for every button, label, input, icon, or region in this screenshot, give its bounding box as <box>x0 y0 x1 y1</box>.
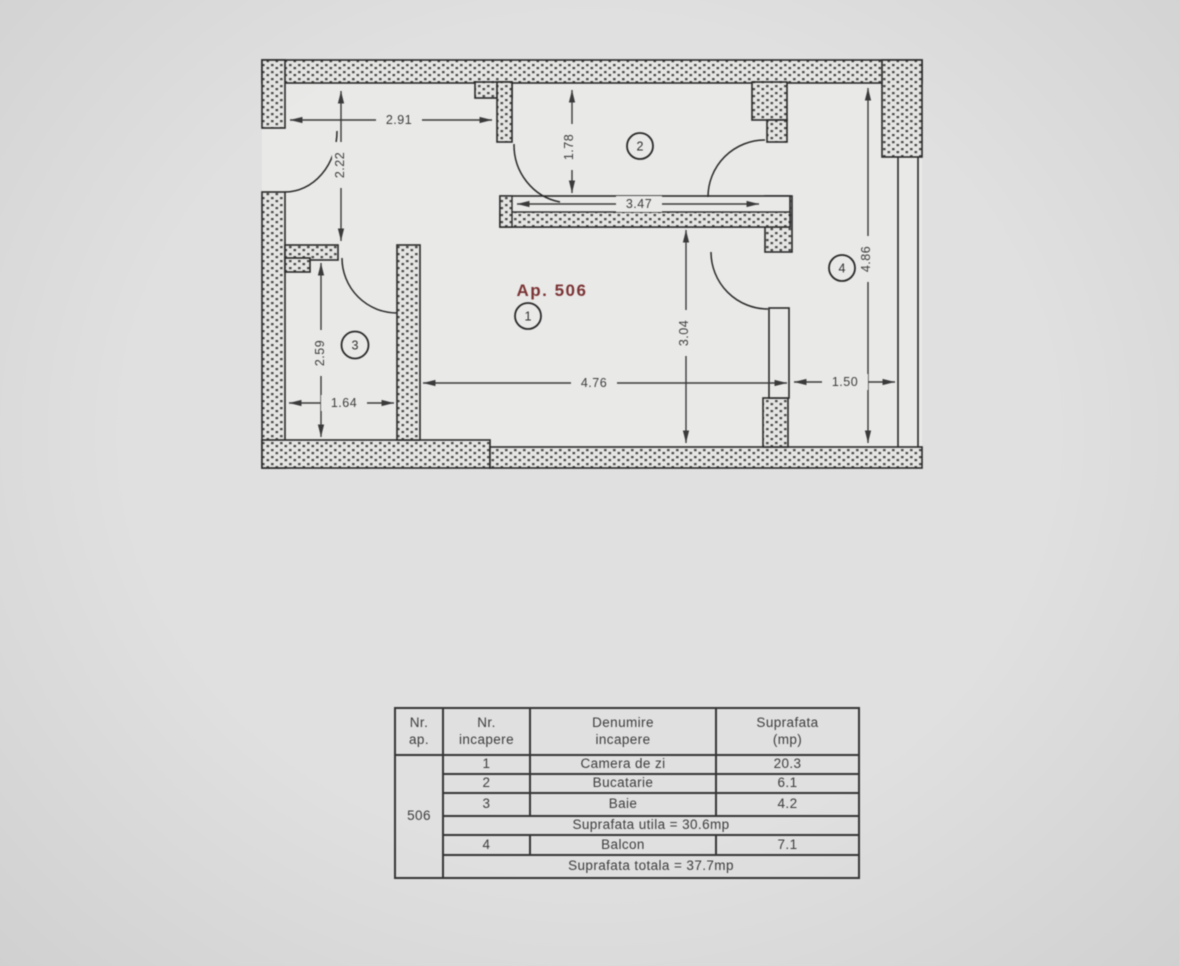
header-nr-incapere: Nr. incapere <box>443 708 530 755</box>
subtotal-row: Suprafata utila = 30.6mp <box>395 816 859 835</box>
header-line: incapere <box>531 732 715 748</box>
dimension-label: 2.91 <box>386 113 412 127</box>
header-suprafata: Suprafata (mp) <box>716 708 859 755</box>
header-denumire: Denumire incapere <box>530 708 716 755</box>
scan-content: 2.91 3.47 4.76 1.50 1.64 2.22 1.78 3.04 … <box>0 0 1179 966</box>
room-nr-cell: 2 <box>443 774 530 793</box>
room-name-cell: Balcon <box>530 835 716 855</box>
header-line: ap. <box>396 732 442 748</box>
floor-plan: 2.91 3.47 4.76 1.50 1.64 2.22 1.78 3.04 … <box>0 0 1179 560</box>
header-nr-ap: Nr. ap. <box>395 708 443 755</box>
dimension-label: 1.50 <box>832 375 858 389</box>
room-name-cell: Camera de zi <box>530 755 716 774</box>
dimension-label: 3.47 <box>626 197 652 211</box>
dimension-label: 3.04 <box>677 320 691 346</box>
room-marker-label: 4 <box>839 262 846 276</box>
wall-segment <box>285 258 310 272</box>
wall-segment <box>490 447 922 468</box>
dimension-label: 4.86 <box>859 246 873 272</box>
wall-segment <box>752 82 787 120</box>
wall-segment <box>497 82 512 142</box>
apartment-number-cell: 506 <box>395 755 443 878</box>
wall-segment <box>397 245 420 440</box>
room-marker-label: 1 <box>525 310 532 324</box>
subtotal-cell: Suprafata utila = 30.6mp <box>443 816 859 835</box>
table-header-row: Nr. ap. Nr. incapere Denumire incapere S… <box>395 708 859 755</box>
room-nr-cell: 3 <box>443 793 530 816</box>
areas-table: Nr. ap. Nr. incapere Denumire incapere S… <box>394 707 858 879</box>
total-cell: Suprafata totala = 37.7mp <box>443 855 859 878</box>
room-nr-cell: 4 <box>443 835 530 855</box>
total-row: Suprafata totala = 37.7mp <box>395 855 859 878</box>
wall-segment <box>763 398 788 447</box>
dimension-label: 1.64 <box>331 396 357 410</box>
wall-segment <box>262 440 490 468</box>
table-row: 506 1 Camera de zi 20.3 <box>395 755 859 774</box>
room-area-cell: 4.2 <box>716 793 859 816</box>
header-line: incapere <box>444 732 529 748</box>
table-row: 3 Baie 4.2 <box>395 793 859 816</box>
header-line: Denumire <box>531 715 715 731</box>
wall-segment <box>262 60 285 128</box>
header-line: Suprafata <box>717 715 858 731</box>
room-name-cell: Baie <box>530 793 716 816</box>
floorplan-document: 2.91 3.47 4.76 1.50 1.64 2.22 1.78 3.04 … <box>0 0 1179 966</box>
room-marker-label: 3 <box>352 339 359 353</box>
room-area-cell: 7.1 <box>716 835 859 855</box>
room-marker-label: 2 <box>637 140 644 154</box>
wall-segment <box>882 60 922 157</box>
table-row: 2 Bucatarie 6.1 <box>395 774 859 793</box>
header-line: (mp) <box>717 732 858 748</box>
room-area-cell: 20.3 <box>716 755 859 774</box>
wall-segment <box>262 192 285 468</box>
header-line: Nr. <box>444 715 529 731</box>
dimension-label: 2.22 <box>333 152 347 178</box>
wall-segment <box>767 120 787 142</box>
wall-segment <box>262 60 922 83</box>
header-line: Nr. <box>396 715 442 731</box>
room-name-cell: Bucatarie <box>530 774 716 793</box>
room-area-cell: 6.1 <box>716 774 859 793</box>
balcony-window <box>769 308 789 398</box>
table-row: 4 Balcon 7.1 <box>395 835 859 855</box>
dimension-label: 4.76 <box>581 376 607 390</box>
dimension-label: 2.59 <box>313 340 327 366</box>
dimension-label: 1.78 <box>562 134 576 160</box>
apartment-label: Ap. 506 <box>517 281 588 300</box>
room-nr-cell: 1 <box>443 755 530 774</box>
